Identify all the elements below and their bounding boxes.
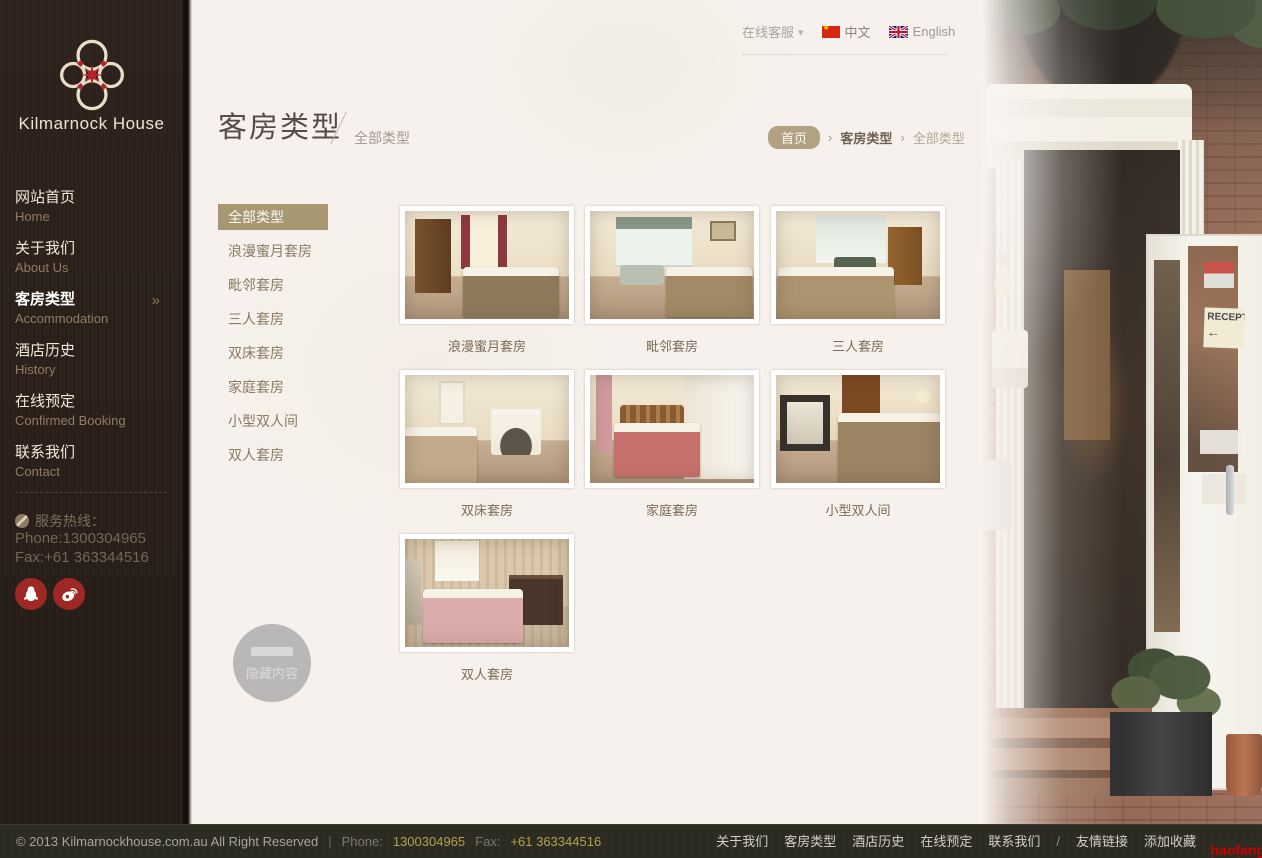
topbar: 在线客服 中文 English [742,22,955,41]
footer-link-history[interactable]: 酒店历史 [852,825,904,858]
lang-switch-en[interactable]: English [889,24,956,39]
hotline: 服务热线： [15,511,105,531]
china-flag-icon [822,26,840,38]
room-thumbnail [776,211,940,319]
chevron-down-icon [798,24,804,39]
nav-label-en: Accommodation [15,310,170,327]
minus-icon [251,647,293,656]
sidebar-item-about[interactable]: 关于我们 About Us [15,239,170,276]
nav-label-en: About Us [15,259,170,276]
page-subtitle: 全部类型 [354,128,410,148]
thumb-shape [509,575,563,625]
breadcrumb: 首页 客房类型 全部类型 [768,126,965,149]
footer-nav: 关于我们 客房类型 酒店历史 在线预定 联系我们 / 友情链接 添加收藏 [716,825,1196,858]
subnav-item-small-double[interactable]: 小型双人间 [218,408,338,434]
thumb-shape [491,409,541,455]
room-caption: 双床套房 [400,500,574,519]
thumb-shape [439,381,465,425]
thumb-shape [842,375,880,417]
hotline-icon [15,514,29,528]
thumb-shape [423,589,523,643]
nav-label-en: History [15,361,170,378]
breadcrumb-level2: 全部类型 [913,128,965,147]
haofang-watermark: haofang haofang [1211,844,1262,858]
subnav-item-twin[interactable]: 双床套房 [218,340,338,366]
nav-label-zh: 酒店历史 [15,341,170,361]
footer-pipe: | [328,825,331,858]
logo-icon[interactable] [51,34,133,116]
footer-link-about[interactable]: 关于我们 [716,825,768,858]
room-photo-frame [400,534,574,652]
thumb-shape [405,427,477,483]
thumb-shape [433,455,473,477]
thumb-shape [816,215,886,263]
sidebar-fax: Fax:+61 363344516 [15,549,149,566]
hide-content-label: 隐藏内容 [233,663,311,682]
thumb-shape [834,257,876,273]
room-photo-frame [585,370,759,488]
thumb-shape [780,395,830,451]
thumb-shape [710,221,736,241]
thumb-shape [684,375,754,479]
nav-label-en: Home [15,208,170,225]
nav-label-zh: 网站首页 [15,188,170,208]
main-nav: 网站首页 Home 关于我们 About Us 客房类型 Accommodati… [15,188,170,494]
room-photo-frame [400,370,574,488]
sidebar-item-accommodation[interactable]: 客房类型 Accommodation [15,290,170,327]
subnav-item-honeymoon[interactable]: 浪漫蜜月套房 [218,238,338,264]
room-thumbnail [590,375,754,483]
room-thumbnail [405,539,569,647]
thumb-shape [838,413,940,483]
breadcrumb-level1[interactable]: 客房类型 [840,128,892,147]
divider [15,492,167,493]
footer-link-booking[interactable]: 在线预定 [920,825,972,858]
room-thumbnail [405,211,569,319]
hotline-label: 服务热线： [35,511,105,531]
subnav-item-double[interactable]: 双人套房 [218,442,338,468]
room-card[interactable]: 小型双人间 [771,370,945,519]
room-card[interactable]: 家庭套房 [585,370,759,519]
photo-white-overlay [982,0,1262,824]
room-photo-frame [771,206,945,324]
room-thumbnail [776,375,940,483]
footer-fax-label: Fax: [475,825,500,858]
social-links [15,578,85,610]
double-chevron-icon [152,292,160,309]
thumb-shape [435,541,479,581]
thumb-shape [405,559,421,625]
thumb-shape [888,227,922,285]
footer-phone-label: Phone: [342,825,383,858]
entrance-photo: RECEPTION [982,0,1262,824]
sidebar-item-history[interactable]: 酒店历史 History [15,341,170,378]
nav-label-zh: 关于我们 [15,239,170,259]
sidebar-item-booking[interactable]: 在线预定 Confirmed Booking [15,392,170,429]
online-service-dropdown[interactable]: 在线客服 [742,22,804,41]
room-caption: 双人套房 [400,664,574,683]
footer-link-favorite[interactable]: 添加收藏 [1144,825,1196,858]
room-card[interactable]: 双床套房 [400,370,574,519]
room-caption: 家庭套房 [585,500,759,519]
subnav-item-all[interactable]: 全部类型 [218,204,328,230]
thumb-shape [616,217,692,267]
footer-link-friends[interactable]: 友情链接 [1076,825,1128,858]
footer-phone-value: 1300304965 [393,825,465,858]
thumb-shape [666,267,752,317]
thumb-shape [463,267,559,317]
room-photo-frame [400,206,574,324]
chevron-right-icon [828,130,832,145]
room-thumbnail [405,375,569,483]
room-caption: 三人套房 [771,336,945,355]
nav-label-zh: 联系我们 [15,443,170,463]
chevron-right-icon [900,130,904,145]
sidebar-item-home[interactable]: 网站首页 Home [15,188,170,225]
room-card[interactable]: 浪漫蜜月套房 [400,206,574,355]
nav-label-zh: 客房类型 [15,290,170,310]
subnav-item-adjacent[interactable]: 毗邻套房 [218,272,338,298]
nav-label-zh: 在线预定 [15,392,170,412]
footer-slash: / [1056,825,1060,858]
footer-info: © 2013 Kilmarnockhouse.com.au All Right … [16,825,601,858]
room-thumbnail [590,211,754,319]
copyright-text: © 2013 Kilmarnockhouse.com.au All Right … [16,825,318,858]
thumb-shape [596,375,612,453]
room-card[interactable]: 三人套房 [771,206,945,355]
weibo-icon[interactable] [53,578,85,610]
page-title: 客房类型 [218,112,342,144]
footer-fax-value: +61 363344516 [510,825,601,858]
lang-zh-label: 中文 [845,22,871,41]
sidebar-shadow [183,0,192,824]
thumb-shape [916,389,930,403]
thumb-shape [614,423,700,477]
hide-content-button[interactable]: 隐藏内容 [233,624,311,702]
subnav-item-family[interactable]: 家庭套房 [218,374,338,400]
room-photo-frame [585,206,759,324]
page-head: 客房类型 全部类型 [218,104,342,146]
thumb-shape [415,219,451,293]
qq-icon[interactable] [15,578,47,610]
brand-name: Kilmarnock House [0,114,183,134]
room-photo-frame [771,370,945,488]
footer-link-contact[interactable]: 联系我们 [988,825,1040,858]
lang-switch-zh[interactable]: 中文 [822,22,871,41]
breadcrumb-home[interactable]: 首页 [768,126,820,149]
thumb-shape [461,215,507,269]
room-card[interactable]: 双人套房 [400,534,574,683]
nav-label-en: Contact [15,463,170,480]
room-caption: 浪漫蜜月套房 [400,336,574,355]
room-caption: 小型双人间 [771,500,945,519]
uk-flag-icon [889,26,908,38]
lang-en-label: English [913,24,956,39]
room-card[interactable]: 毗邻套房 [585,206,759,355]
page: RECEPTION Kilmar [0,0,1262,858]
room-caption: 毗邻套房 [585,336,759,355]
room-type-subnav: 全部类型 浪漫蜜月套房 毗邻套房 三人套房 双床套房 家庭套房 小型双人间 双人… [218,204,338,476]
footer-link-rooms[interactable]: 客房类型 [784,825,836,858]
topbar-divider [742,54,948,55]
thumb-shape [620,265,664,285]
subnav-item-triple[interactable]: 三人套房 [218,306,338,332]
thumb-shape [778,267,894,319]
online-service-label: 在线客服 [742,22,794,41]
sidebar-phone: Phone:1300304965 [15,530,146,547]
nav-label-en: Confirmed Booking [15,412,170,429]
thumb-shape [620,405,684,431]
sidebar-item-contact[interactable]: 联系我们 Contact [15,443,170,480]
sidebar: Kilmarnock House 网站首页 Home 关于我们 About Us… [0,0,183,824]
footer: © 2013 Kilmarnockhouse.com.au All Right … [0,824,1262,858]
